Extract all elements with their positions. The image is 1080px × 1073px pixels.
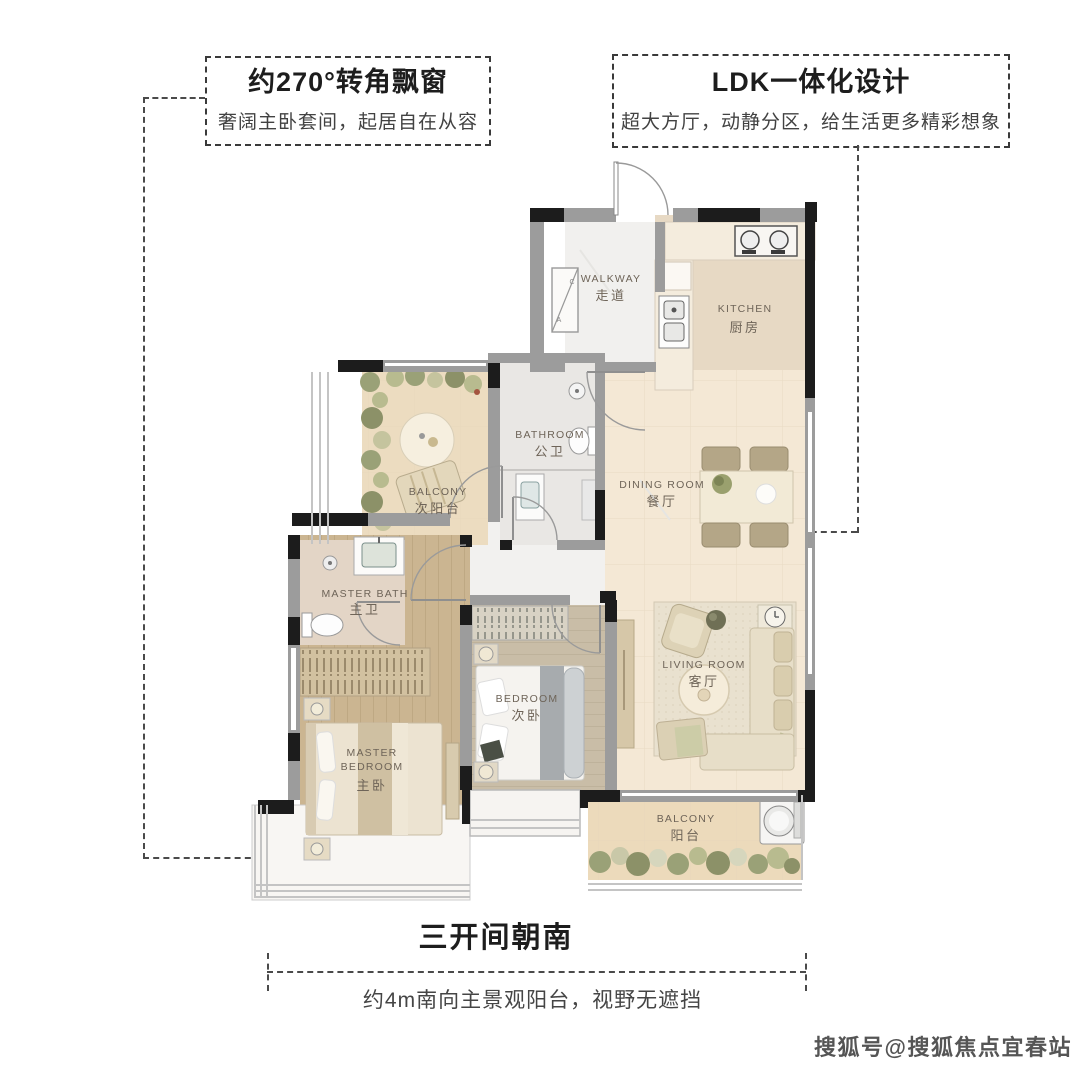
- sink-faucet: [672, 308, 677, 313]
- callout-corner-window-subtitle: 奢阔主卧套间，起居自在从容: [218, 107, 478, 134]
- potted-plant-highlight: [709, 613, 717, 621]
- coffee-table-tray: [698, 689, 710, 701]
- stove-burner-left: [741, 231, 759, 249]
- floor-plan-page: 约270°转角飘窗 奢阔主卧套间，起居自在从容 LDK一体化设计 超大方厅，动静…: [0, 0, 1080, 1073]
- master-bed-sheet-fold: [392, 723, 408, 835]
- washing-machine-panel: [794, 802, 801, 838]
- room-label-living-en: LIVING ROOM: [662, 659, 745, 671]
- stove-burner-right: [770, 231, 788, 249]
- bedroom-bay-window-sill: [470, 790, 580, 836]
- dimension-tick-right: [805, 953, 807, 991]
- sink-basin-2: [664, 323, 684, 341]
- balcony-table-cup-2: [428, 437, 438, 447]
- bathroom-sink-drain: [575, 389, 579, 393]
- bottom-annotation-title: 三开间朝南: [340, 914, 652, 956]
- ac-shaft-letter-a: A: [557, 317, 562, 324]
- bedroom-wardrobe-hangers-bottom: [474, 625, 566, 639]
- watermark-text: 搜狐号@搜狐焦点宜春站: [814, 1030, 1072, 1062]
- room-label-kitchen-cn: 厨房: [729, 320, 760, 335]
- bedroom-blanket: [540, 666, 564, 780]
- callout-ldk-design-subtitle: 超大方厅，动静分区，给生活更多精彩想象: [621, 107, 1001, 134]
- room-label-master-en1: MASTER: [347, 747, 398, 759]
- ac-shaft-letter-c: C: [569, 279, 574, 286]
- room-label-bathroom-cn: 公卫: [534, 444, 565, 459]
- dining-plate: [756, 484, 776, 504]
- master-bed-headboard: [306, 723, 316, 835]
- floor-plan-svg: A C: [230, 150, 830, 915]
- sofa-back-cushion-1: [774, 632, 792, 662]
- room-label-bedroom-cn: 次卧: [511, 708, 542, 723]
- room-label-walkway-cn: 走道: [595, 288, 626, 303]
- bedroom-bolster: [564, 668, 584, 778]
- lamp-master-top: [311, 703, 323, 715]
- room-label-master-bath-en: MASTER BATH: [321, 588, 408, 600]
- leader-right-vertical-segment: [857, 145, 859, 533]
- room-label-balcony-south-en: BALCONY: [657, 813, 716, 825]
- master-bed-bench: [446, 743, 459, 819]
- lamp-master-bottom: [311, 843, 323, 855]
- sofa-chaise: [700, 734, 794, 770]
- shower-head-center: [328, 561, 332, 565]
- callout-ldk-design-title: LDK一体化设计: [712, 68, 911, 98]
- lamp-bedroom-bottom: [479, 765, 493, 779]
- dining-chair-3: [702, 523, 740, 547]
- master-sink-basin: [362, 543, 396, 567]
- room-label-dining-en: DINING ROOM: [619, 479, 705, 491]
- room-label-master-bath-cn: 主卫: [349, 602, 380, 617]
- room-label-master-en2: BEDROOM: [341, 761, 404, 773]
- master-toilet-icon: [311, 614, 343, 636]
- dining-chair-2: [750, 447, 788, 471]
- entry-door-leaf: [614, 162, 618, 215]
- room-label-master-cn: 主卧: [356, 778, 387, 793]
- dining-chair-4: [750, 523, 788, 547]
- stove-knob-left: [742, 250, 756, 254]
- dining-chair-1: [702, 447, 740, 471]
- leader-left-vertical-segment: [143, 97, 145, 859]
- ottoman-throw: [675, 725, 704, 758]
- sofa-back-cushion-3: [774, 700, 792, 730]
- shower-basin: [521, 482, 539, 508]
- dimension-line: [267, 971, 806, 973]
- potted-plant-icon: [706, 610, 726, 630]
- sofa-back-cushion-2: [774, 666, 792, 696]
- leader-left-top-segment: [143, 97, 205, 99]
- room-label-kitchen-en: KITCHEN: [718, 303, 773, 315]
- dining-centerpiece-plant-inner: [714, 476, 724, 486]
- room-label-balcony-north-cn: 次阳台: [415, 501, 462, 516]
- room-label-balcony-north-en: BALCONY: [409, 486, 468, 498]
- room-label-bathroom-en: BATHROOM: [515, 429, 585, 441]
- lamp-bedroom-top: [479, 647, 493, 661]
- master-wardrobe-hangers-top: [302, 650, 428, 672]
- room-label-living-cn: 客厅: [688, 674, 719, 689]
- callout-corner-window-title: 约270°转角飘窗: [248, 68, 448, 98]
- balcony-table-icon: [400, 413, 454, 467]
- room-label-balcony-south-cn: 阳台: [670, 828, 701, 843]
- callout-ldk-design: LDK一体化设计 超大方厅，动静分区，给生活更多精彩想象: [612, 54, 1010, 148]
- stove-knob-right: [771, 250, 785, 254]
- entry-door-arc: [616, 163, 668, 215]
- bottom-annotation-subtitle: 约4m南向主景观阳台，视野无遮挡: [260, 984, 805, 1014]
- room-label-dining-cn: 餐厅: [646, 494, 677, 509]
- washing-machine-drum-inner: [769, 811, 789, 831]
- room-label-walkway-en: WALKWAY: [581, 273, 642, 285]
- callout-corner-window: 约270°转角飘窗 奢阔主卧套间，起居自在从容: [205, 56, 491, 146]
- master-wardrobe-hangers-bottom: [302, 674, 428, 694]
- room-label-bedroom-en: BEDROOM: [496, 693, 559, 705]
- balcony-table-cup-1: [419, 433, 425, 439]
